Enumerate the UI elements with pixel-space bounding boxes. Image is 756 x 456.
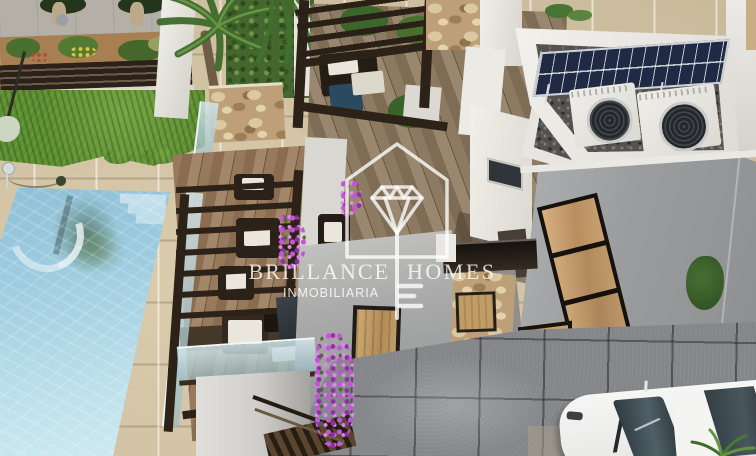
bougainvillea	[312, 330, 356, 448]
pool-palm-reflection	[52, 196, 118, 272]
driveway-light-patch	[360, 356, 550, 456]
neighbor-stone-sliver	[746, 0, 756, 50]
ac-fan-grille	[584, 95, 635, 146]
grass-tuft	[104, 150, 132, 164]
chair-cushion	[226, 272, 246, 290]
pool-step	[128, 203, 166, 214]
car-antenna	[644, 380, 648, 392]
dark-glass-railing	[442, 239, 537, 274]
stone-accent-wall-top	[426, 0, 484, 50]
stone-planter-wall	[209, 82, 286, 143]
pool-step	[136, 213, 166, 224]
seat-cushion	[351, 70, 385, 95]
lit-window	[553, 245, 616, 301]
pool-trunk-reflection	[53, 195, 73, 255]
white-post	[436, 234, 456, 262]
windshield-reflection	[634, 418, 660, 431]
pool-step	[120, 193, 166, 205]
car-headlight	[566, 411, 583, 420]
bougainvillea	[276, 212, 306, 270]
stone-wall-window	[455, 291, 496, 332]
lit-window	[542, 198, 605, 254]
ac-fan-grille	[656, 99, 712, 155]
bougainvillea	[338, 178, 362, 218]
pool-plant-reflection	[66, 225, 126, 275]
shower-hose	[8, 166, 64, 188]
chair-cushion	[324, 222, 342, 242]
ac-unit-2	[637, 83, 722, 154]
villa-render-scene: BRILLANCE HOMES INMOBILIARIA	[0, 0, 756, 456]
pool-curved-bench	[0, 186, 96, 284]
street-palm-trunk	[130, 2, 144, 26]
ac-unit-1	[569, 82, 642, 148]
garden-ball-ornament	[56, 14, 68, 26]
